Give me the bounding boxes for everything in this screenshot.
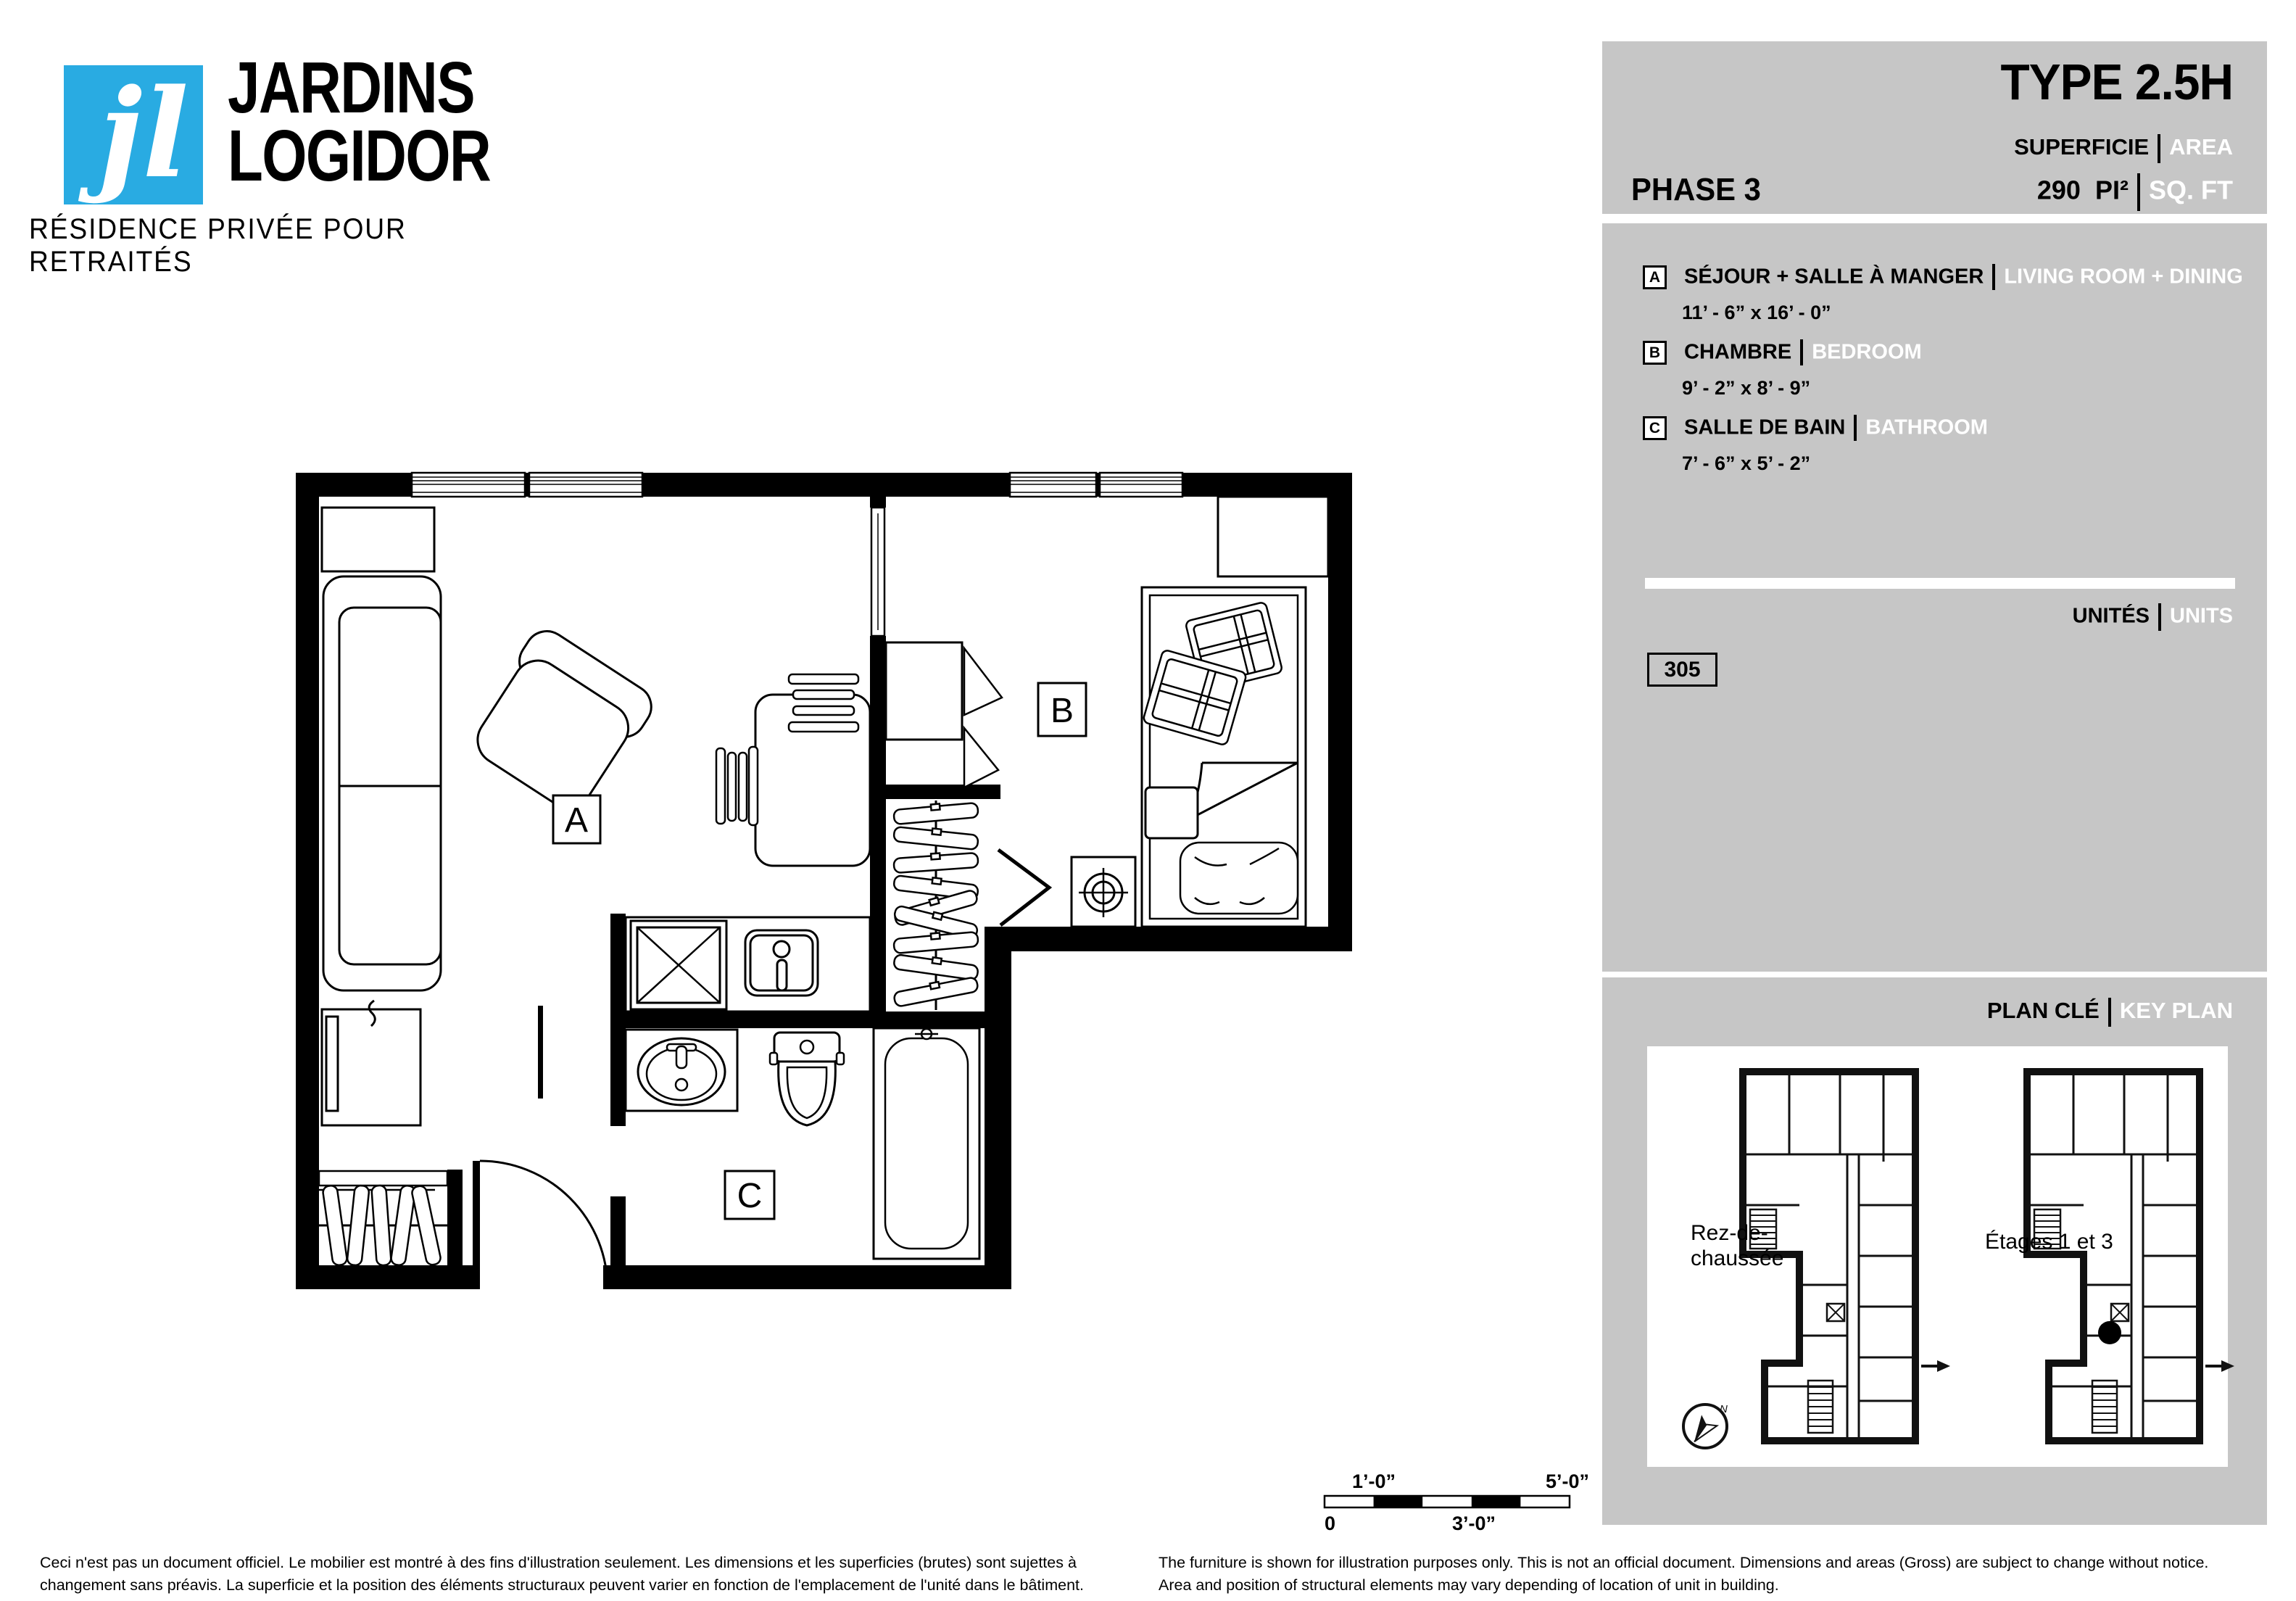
console-cabinet [322, 508, 434, 571]
stove-icon [631, 921, 726, 1009]
scale-label-5ft: 5’-0” [1546, 1470, 1589, 1492]
footer-en-line1: The furniture is shown for illustration … [1159, 1552, 2208, 1574]
window-icon [1010, 473, 1096, 497]
bathroom [538, 1006, 979, 1259]
room-label-c: C [737, 1177, 763, 1215]
glazed-partition [871, 508, 884, 636]
legend-label-en-b: BEDROOM [1812, 341, 1921, 364]
brand-header: jl JARDINS LOGIDOR RÉSIDENCE PRIVÉE POUR… [0, 0, 580, 261]
divider-bar [1800, 339, 1803, 365]
brand-tagline: RÉSIDENCE PRIVÉE POUR RETRAITÉS [29, 213, 542, 278]
phase-label: PHASE 3 [1631, 172, 1761, 208]
keyplan-panel: PLAN CLÉKEY PLAN [1602, 977, 2267, 1525]
dining-chair-left [716, 747, 758, 825]
area-unit-fr: PI² [2095, 175, 2129, 205]
room-label-b: B [1050, 692, 1074, 730]
entry-closet [319, 1171, 447, 1266]
area-value: 290 [2037, 175, 2081, 205]
legend-label-en-a: LIVING ROOM + DINING [2004, 265, 2243, 289]
ceiling-fixture-icon [1072, 857, 1135, 927]
keyplan-caption-ground-line1: Rez-de- [1691, 1221, 1783, 1246]
closet-hangers [893, 800, 979, 1010]
window-icon [529, 473, 642, 497]
legend-panel: ASÉJOUR + SALLE À MANGERLIVING ROOM + DI… [1602, 223, 2267, 972]
legend-dims-c: 7’ - 6” x 5’ - 2” [1682, 452, 1810, 475]
scale-label-0: 0 [1325, 1513, 1335, 1534]
area-value-row: 290 PI²SQ. FT [2037, 173, 2233, 211]
units-label-fr: UNITÉS [2073, 605, 2150, 628]
legend-label-fr-a: SÉJOUR + SALLE À MANGER [1684, 265, 1984, 289]
compass-north-label: N [1720, 1403, 1728, 1415]
pillow [1180, 843, 1298, 914]
vanity-sink-icon [626, 1030, 737, 1111]
scale-label-1ft: 1’-0” [1352, 1470, 1396, 1492]
tv-table [322, 1001, 420, 1125]
legend-label-en-c: BATHROOM [1865, 416, 1988, 439]
units-divider [1645, 578, 2235, 589]
unit-location-dot [2098, 1321, 2121, 1344]
window-icon [412, 473, 525, 497]
scale-label-3ft: 3’-0” [1452, 1513, 1496, 1534]
windows [412, 473, 1182, 636]
footer-disclaimer-en: The furniture is shown for illustration … [1159, 1552, 2208, 1597]
footer-fr-line1: Ceci n'est pas un document officiel. Le … [40, 1552, 1084, 1574]
brand-name-line1: JARDINS [228, 54, 490, 122]
bedroom-door-swing [998, 850, 1049, 925]
kitchen-sink-icon [745, 930, 818, 996]
area-label: AREA [2169, 134, 2233, 160]
footer-disclaimer-fr: Ceci n'est pas un document officiel. Le … [40, 1552, 1084, 1597]
divider-bar [1992, 264, 1995, 290]
legend-key-c: C [1643, 416, 1667, 440]
units-label-en: UNITS [2170, 605, 2233, 628]
brand-name-line2: LOGIDOR [228, 122, 490, 190]
brand-monogram: jl [74, 64, 213, 203]
type-title: TYPE 2.5H [2000, 53, 2233, 111]
brand-wordmark: JARDINS LOGIDOR [228, 54, 490, 190]
bedroom-closet-niche [1218, 497, 1328, 576]
entry-door-swing [480, 1161, 608, 1288]
scale-bar: 1’-0” 5’-0” 0 3’-0” [1290, 1465, 1609, 1544]
legend-dims-b: 9’ - 2” x 8’ - 9” [1682, 377, 1810, 400]
bathtub-icon [874, 1028, 979, 1259]
entry-door-leaf [473, 1161, 480, 1288]
room-label-a: A [565, 801, 588, 840]
divider-bar [2158, 603, 2161, 631]
divider-bar [2158, 134, 2160, 163]
compass-icon: N [1683, 1403, 1728, 1448]
armchair [463, 623, 660, 821]
legend-row-c: CSALLE DE BAINBATHROOM [1643, 415, 1988, 441]
floor-plan: A B C [275, 450, 1377, 1320]
brand-logo: jl [64, 65, 203, 204]
legend-label-fr-c: SALLE DE BAIN [1684, 416, 1845, 439]
legend-row-a: ASÉJOUR + SALLE À MANGERLIVING ROOM + DI… [1643, 264, 2243, 290]
floorplan-sheet: jl JARDINS LOGIDOR RÉSIDENCE PRIVÉE POUR… [0, 0, 2296, 1601]
divider-bar [1854, 415, 1857, 441]
sofa [323, 576, 441, 990]
legend-key-b: B [1643, 341, 1667, 365]
keyplan-caption-ground: Rez-de- chaussée [1691, 1221, 1783, 1271]
divider-bar [2137, 173, 2140, 211]
legend-dims-a: 11’ - 6” x 16’ - 0” [1682, 302, 1831, 324]
area-unit-en: SQ. FT [2149, 175, 2233, 205]
bed [1142, 587, 1306, 927]
legend-label-fr-b: CHAMBRE [1684, 341, 1791, 364]
legend-row-b: BCHAMBREBEDROOM [1643, 339, 1922, 365]
wardrobe [886, 642, 1002, 787]
superficie-row: SUPERFICIEAREA [2014, 134, 2233, 163]
unit-number-badge: 305 [1647, 653, 1717, 687]
superficie-label: SUPERFICIE [2014, 134, 2149, 160]
bedside-table [1145, 787, 1198, 838]
kitchen [626, 917, 870, 1012]
toilet-icon [770, 1033, 844, 1125]
type-panel: TYPE 2.5H SUPERFICIEAREA PHASE 3 290 PI²… [1602, 41, 2267, 214]
window-icon [1100, 473, 1182, 497]
bathroom-door-leaf [538, 1006, 543, 1099]
units-row: UNITÉSUNITS [2073, 603, 2233, 631]
keyplan-caption-floors: Étages 1 et 3 [1985, 1230, 2113, 1255]
legend-key-a: A [1643, 265, 1667, 289]
footer-fr-line2: changement sans préavis. La superficie e… [40, 1574, 1084, 1597]
footer-en-line2: Area and position of structural elements… [1159, 1574, 2208, 1597]
keyplan-caption-ground-line2: chaussée [1691, 1246, 1783, 1272]
dining-table [755, 695, 870, 866]
